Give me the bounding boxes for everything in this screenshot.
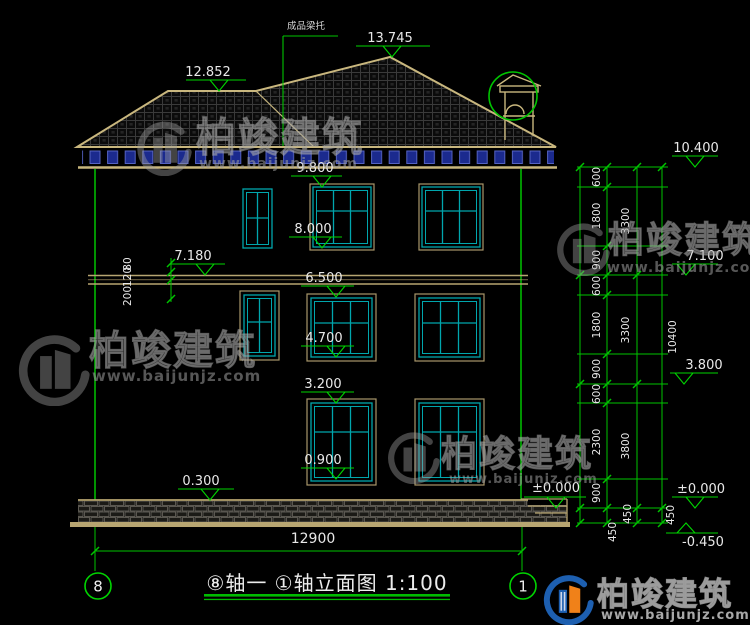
dim-chain1-3: 600 xyxy=(592,276,603,296)
watermark-url: www.baijunjz.com xyxy=(199,157,358,171)
dim-chain1-0: 600 xyxy=(592,167,603,187)
brand-name: 柏竣建筑 xyxy=(597,578,733,610)
elev-roof-peak: 13.745 xyxy=(367,32,413,45)
axis-bubble-1: 1 xyxy=(518,580,528,595)
dim-120: 120 xyxy=(123,267,134,287)
dim-chain2-1: 3300 xyxy=(621,317,632,344)
watermark-url: www.baijunjz.com xyxy=(607,261,750,275)
dim-chain1-6: 600 xyxy=(592,384,603,404)
dim-200: 200 xyxy=(123,286,134,306)
watermark-brand: 柏竣建筑 xyxy=(608,223,750,259)
dim-chain3-1: 450 xyxy=(666,505,677,525)
elev-f2-head: 6.500 xyxy=(305,272,342,285)
elev-plinth: 0.300 xyxy=(182,475,219,488)
level-0000: ±0.000 xyxy=(677,483,725,496)
windows-floor2 xyxy=(240,291,484,361)
watermark-logo xyxy=(552,218,610,276)
elev-roof-left: 12.852 xyxy=(185,66,231,79)
watermark-url: www.baijunjz.com xyxy=(449,473,598,486)
dim-chain2-2: 3800 xyxy=(621,433,632,460)
level-neg450: -0.450 xyxy=(682,536,724,549)
elevation-drawing xyxy=(0,0,750,625)
overall-width-dim: 12900 xyxy=(291,532,336,546)
elev-f2-sill: 4.700 xyxy=(305,332,342,345)
watermark-logo xyxy=(12,328,90,406)
watermark-url: www.baijunjz.com xyxy=(92,369,261,384)
watermark-logo xyxy=(383,427,440,484)
elev-f1-sill: 0.900 xyxy=(304,454,341,467)
cad-canvas: 成品梁托 13.745 12.852 9.800 8.000 7.180 6.5… xyxy=(0,0,750,625)
watermark-brand: 柏竣建筑 xyxy=(196,118,364,158)
watermark-logo xyxy=(132,116,192,176)
roof-note: 成品梁托 xyxy=(287,22,325,32)
axis-bubble-8: 8 xyxy=(93,580,103,595)
dim-chain1-4: 1800 xyxy=(592,312,603,339)
elev-band-top: 7.180 xyxy=(174,250,211,263)
level-10400: 10.400 xyxy=(673,142,719,155)
dim-chain1-5: 900 xyxy=(592,359,603,379)
drawing-title: ⑧轴一 ①轴立面图 1:100 xyxy=(206,573,447,593)
elev-f1-head: 3.200 xyxy=(304,378,341,391)
plinth xyxy=(70,500,570,527)
detail-circle xyxy=(489,72,537,120)
level-3800: 3.800 xyxy=(685,359,722,372)
brand-logo-color xyxy=(538,570,595,625)
windows-floor3 xyxy=(243,184,483,250)
watermark-brand: 柏竣建筑 xyxy=(89,331,257,371)
watermark-brand: 柏竣建筑 xyxy=(441,437,593,473)
dim-chain3-0: 10400 xyxy=(668,320,679,353)
dim-chain1-7: 2300 xyxy=(592,429,603,456)
dim-chain2-3: 450 xyxy=(623,504,634,524)
brand-url: www.baijunjz.com xyxy=(601,609,750,622)
elev-f3-sill: 8.000 xyxy=(294,223,331,236)
dim-chain1-9: 450 xyxy=(608,522,619,542)
